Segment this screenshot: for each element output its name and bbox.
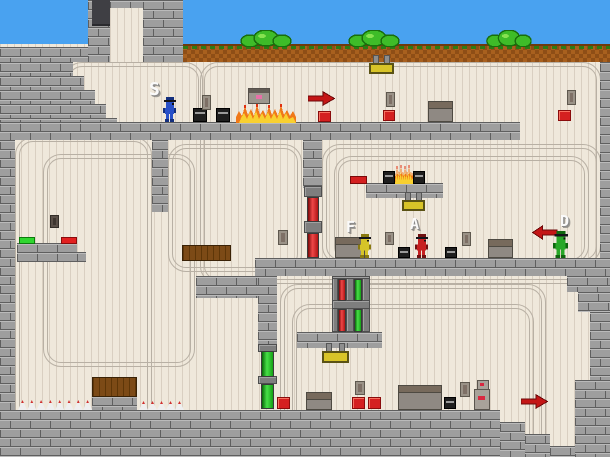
dispenser-box xyxy=(383,171,395,184)
dispenser-box xyxy=(413,171,425,184)
bush xyxy=(348,30,400,47)
player-sprite xyxy=(357,234,372,258)
spikes xyxy=(139,401,184,410)
wall-door xyxy=(278,230,288,245)
dispenser-slot xyxy=(447,251,455,253)
red-button[interactable] xyxy=(558,110,571,121)
wooden-platform xyxy=(182,245,231,261)
wall-door xyxy=(385,232,394,245)
dispenser-box xyxy=(445,247,457,258)
player-character-d[interactable] xyxy=(552,231,569,258)
wall-door xyxy=(50,215,59,228)
wall-door xyxy=(386,92,395,107)
player-sprite xyxy=(552,231,569,258)
door-frame xyxy=(304,221,322,233)
game-viewport: S F A D xyxy=(0,0,610,457)
chimney-opening xyxy=(92,0,110,26)
crate-lid xyxy=(307,393,331,400)
switch-device[interactable] xyxy=(474,380,490,410)
brick-structure xyxy=(525,434,550,457)
brick-structure xyxy=(196,276,258,298)
sign-board xyxy=(402,200,425,211)
wall-door-panel xyxy=(388,235,391,242)
brick-structure xyxy=(143,0,183,62)
door-barrier-green xyxy=(261,384,274,409)
bush xyxy=(486,30,532,47)
crate-lid xyxy=(489,240,512,247)
wall-door-panel xyxy=(53,218,56,225)
door-barrier-red xyxy=(307,197,319,222)
brick-structure xyxy=(0,410,500,457)
spike-icon xyxy=(27,400,36,410)
brick-structure xyxy=(0,104,106,118)
spike-icon xyxy=(18,400,27,410)
wall-door xyxy=(202,95,211,110)
hanging-sign xyxy=(402,192,425,211)
brick-structure xyxy=(0,122,520,140)
spike-icon xyxy=(55,400,64,410)
brick-structure xyxy=(575,380,610,457)
crate[interactable] xyxy=(488,239,513,258)
brick-structure xyxy=(0,47,88,62)
red-barrier xyxy=(350,176,367,184)
brick-structure xyxy=(17,252,86,262)
spike-icon xyxy=(157,401,166,410)
door-barrier-red xyxy=(338,279,346,301)
player-label-a: A xyxy=(410,217,419,232)
arrow-right-icon xyxy=(308,91,335,106)
fire-hazard xyxy=(394,164,414,184)
brick-structure xyxy=(0,90,95,104)
brick-structure xyxy=(92,396,137,410)
arrow-right-indicator xyxy=(521,394,548,409)
sign-board xyxy=(322,351,349,363)
dispenser-box xyxy=(193,108,207,122)
dispenser-box xyxy=(216,108,230,122)
door-frame xyxy=(304,186,322,197)
brick-structure xyxy=(110,0,143,8)
wall-door-panel xyxy=(281,233,285,242)
dispenser-box xyxy=(398,247,410,258)
spike-icon xyxy=(148,401,157,410)
spike-icon xyxy=(74,400,83,410)
sign-board xyxy=(369,63,394,74)
red-button[interactable] xyxy=(318,111,331,122)
spike-icon xyxy=(37,400,46,410)
flame-icon xyxy=(394,164,414,184)
door-barrier-green xyxy=(354,309,362,332)
pressure-plate-green[interactable] xyxy=(19,237,35,244)
brick-structure xyxy=(600,62,610,258)
arrow-right-indicator xyxy=(308,91,335,106)
wall-door-panel xyxy=(358,384,362,392)
crate-lid xyxy=(429,102,452,109)
machine-light-icon xyxy=(256,95,262,99)
brick-structure xyxy=(500,422,525,457)
dispenser-slot xyxy=(400,251,408,253)
fire-hazard xyxy=(236,103,296,123)
red-button[interactable] xyxy=(383,110,395,121)
player-label-d: D xyxy=(560,214,569,229)
wall-door-panel xyxy=(389,95,392,104)
dispenser-box xyxy=(444,397,456,409)
wall-door-panel xyxy=(205,98,208,107)
hanging-sign xyxy=(369,55,394,74)
crate[interactable] xyxy=(428,101,453,122)
red-button[interactable] xyxy=(368,397,381,409)
dispenser-slot xyxy=(385,175,393,177)
dispenser-slot xyxy=(446,401,454,403)
crate[interactable] xyxy=(398,385,442,410)
crate[interactable] xyxy=(306,392,332,410)
wall-door xyxy=(460,382,470,397)
wall-door xyxy=(355,381,365,395)
brick-structure xyxy=(590,312,610,380)
flame-icon xyxy=(236,103,296,123)
spike-icon xyxy=(65,400,74,410)
dispenser-slot xyxy=(195,112,205,114)
brick-structure xyxy=(303,140,322,188)
bush xyxy=(240,30,292,47)
player-character-s[interactable] xyxy=(162,97,177,122)
player-label-f: F xyxy=(346,220,355,235)
door-barrier-red xyxy=(307,233,319,258)
door-barrier-red xyxy=(338,309,346,332)
spike-icon xyxy=(175,401,184,410)
door-frame xyxy=(332,300,370,309)
player-sprite xyxy=(414,234,429,258)
spike-icon xyxy=(166,401,175,410)
brick-structure xyxy=(578,292,610,312)
spikes xyxy=(18,400,92,410)
brick-structure xyxy=(255,258,610,276)
dispenser-slot xyxy=(218,112,228,114)
wooden-platform xyxy=(92,377,137,397)
spike-icon xyxy=(46,400,55,410)
wall-door-panel xyxy=(465,235,468,243)
player-character-a[interactable] xyxy=(414,234,429,258)
crate-lid xyxy=(399,386,441,393)
lever-machine[interactable] xyxy=(248,88,270,104)
hanging-sign xyxy=(322,343,349,363)
bush-icon xyxy=(348,30,400,47)
machine-top xyxy=(249,89,269,93)
brick-structure xyxy=(0,76,84,90)
player-sprite xyxy=(162,97,177,122)
brick-structure xyxy=(258,276,277,346)
brick-structure xyxy=(0,62,73,76)
wall-door-panel xyxy=(463,385,467,394)
dispenser-slot xyxy=(415,175,423,177)
spike-icon xyxy=(83,400,92,410)
bush-icon xyxy=(240,30,292,47)
player-label-s: S xyxy=(149,81,160,99)
red-button[interactable] xyxy=(277,397,290,409)
bush-icon xyxy=(486,30,532,47)
wall-door-panel xyxy=(570,93,573,102)
arrow-right-icon xyxy=(521,394,548,409)
wall-background xyxy=(110,8,143,62)
red-button[interactable] xyxy=(352,397,365,409)
pressure-plate-red[interactable] xyxy=(61,237,77,244)
brick-structure xyxy=(567,276,610,292)
door-frame xyxy=(258,376,277,384)
door-barrier-green xyxy=(354,279,362,301)
spike-icon xyxy=(139,401,148,410)
player-character-f[interactable] xyxy=(357,234,372,258)
brick-structure xyxy=(152,140,168,212)
door-barrier-green xyxy=(261,351,274,377)
device-body xyxy=(474,389,490,410)
brick-structure xyxy=(550,446,575,457)
wall-door xyxy=(462,232,471,246)
wall-door xyxy=(567,90,576,105)
